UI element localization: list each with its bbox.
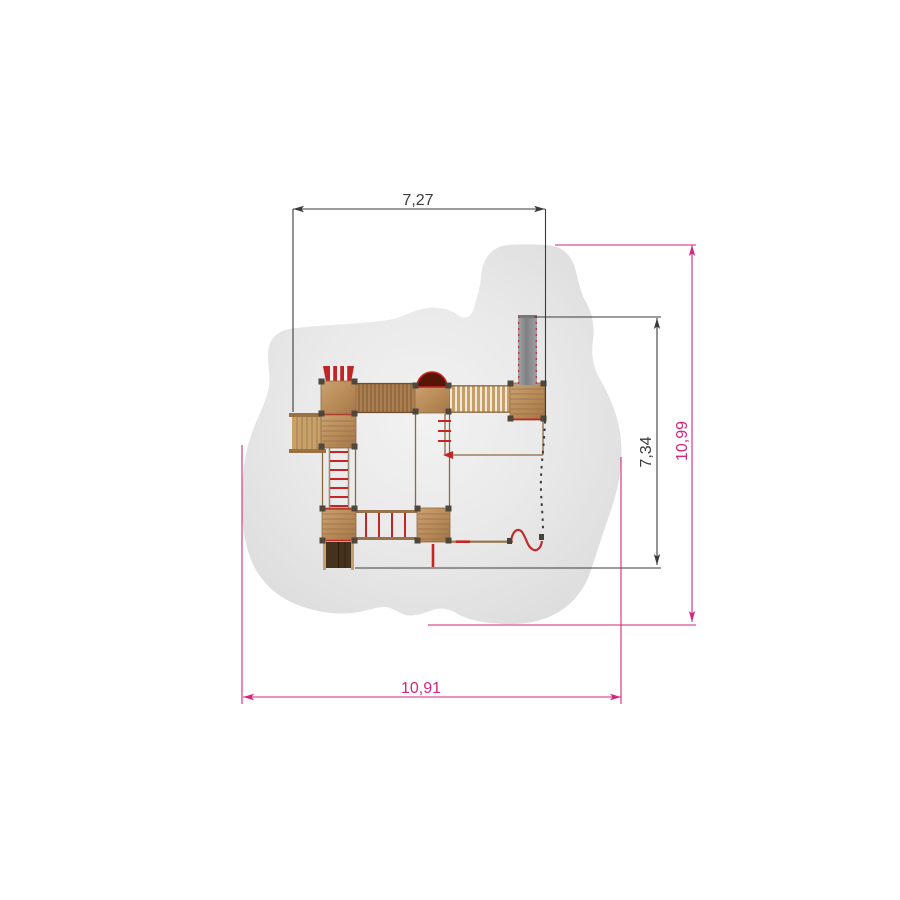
gray-slide (518, 315, 537, 385)
plan-drawing: 7,27 7,34 10,99 10,91 (0, 0, 900, 900)
lower-center-platform (417, 508, 450, 542)
tower-striped-roof (323, 366, 354, 382)
tower-lower-platform (321, 415, 356, 448)
dim-label-outer-height: 10,99 (674, 421, 691, 461)
rope-bridge (450, 385, 510, 413)
dim-label-inner-height: 7,34 (638, 436, 655, 467)
drawing-canvas: 7,27 7,34 10,99 10,91 (0, 0, 900, 900)
top-right-platform (510, 383, 545, 420)
ground-rail (450, 540, 513, 543)
dim-label-top-width: 7,27 (402, 192, 433, 209)
dim-label-outer-width: 10,91 (401, 680, 441, 697)
dark-slide (323, 540, 354, 570)
arch-tunnel-platform (415, 372, 450, 413)
plank-bridge (356, 383, 415, 413)
lower-left-platform (322, 508, 356, 541)
tower-upper-platform (321, 381, 356, 415)
